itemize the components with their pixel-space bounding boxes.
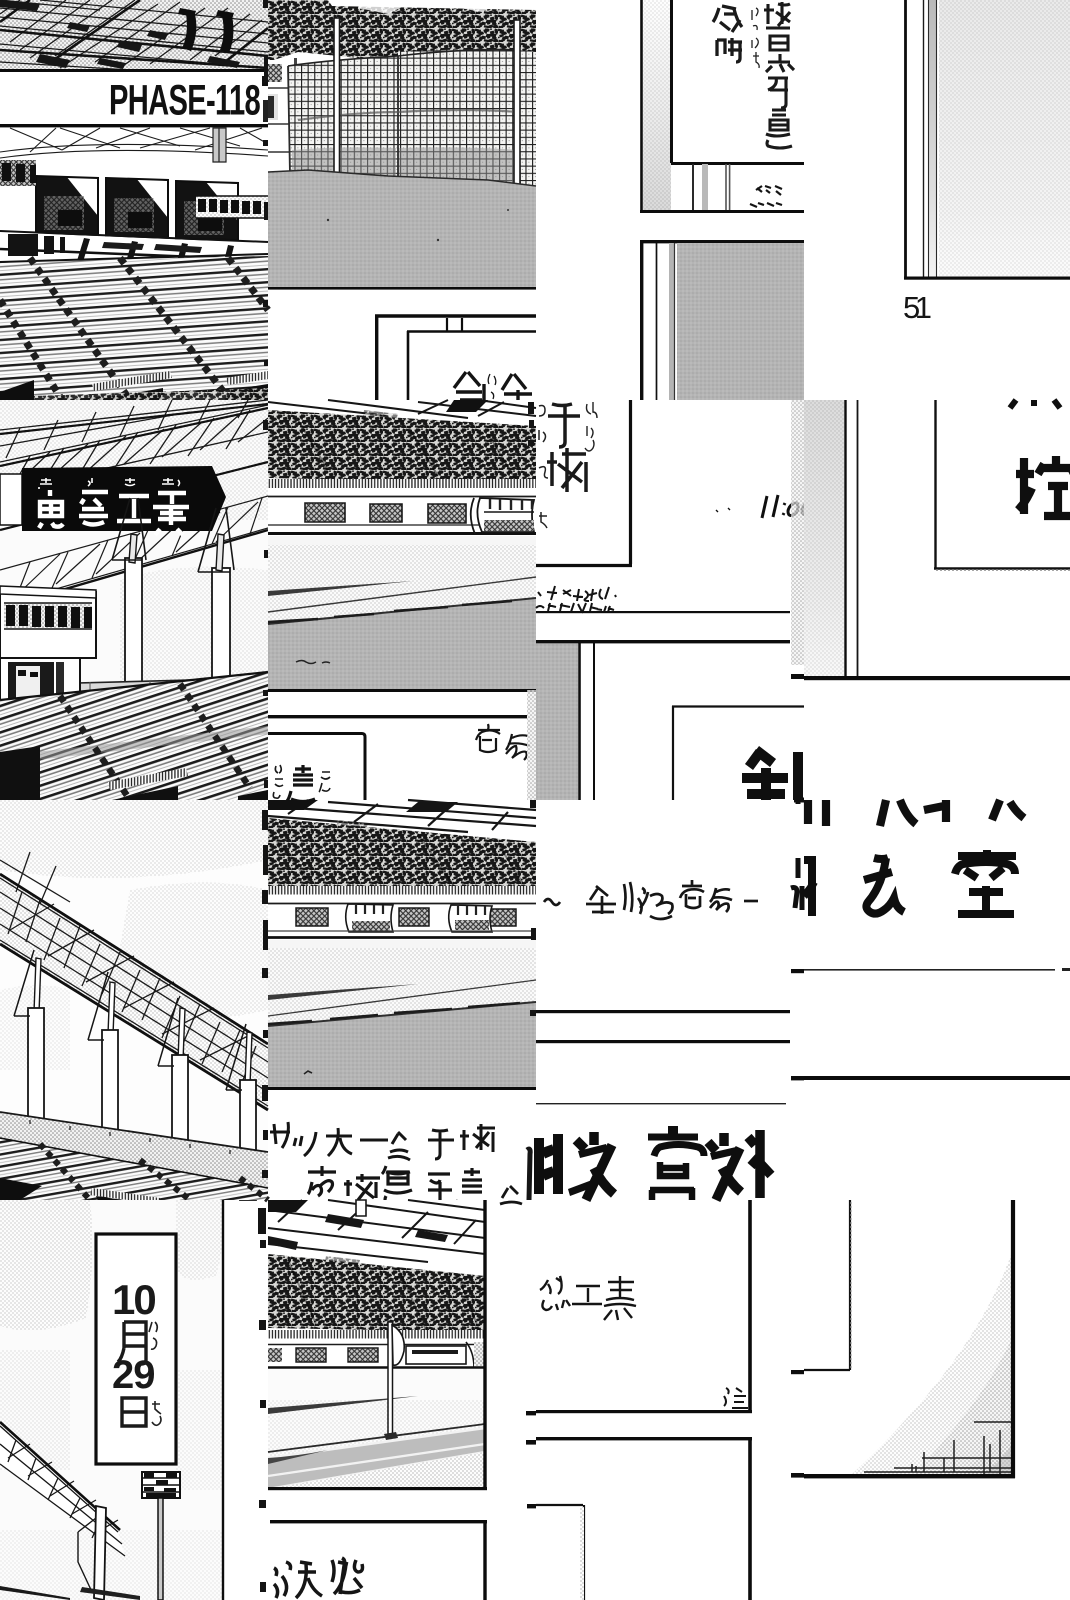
svg-text:10: 10 xyxy=(112,1276,155,1323)
svg-text:29: 29 xyxy=(112,1353,155,1397)
svg-text:PHASE-118: PHASE-118 xyxy=(109,77,260,125)
svg-text:51: 51 xyxy=(903,290,932,325)
